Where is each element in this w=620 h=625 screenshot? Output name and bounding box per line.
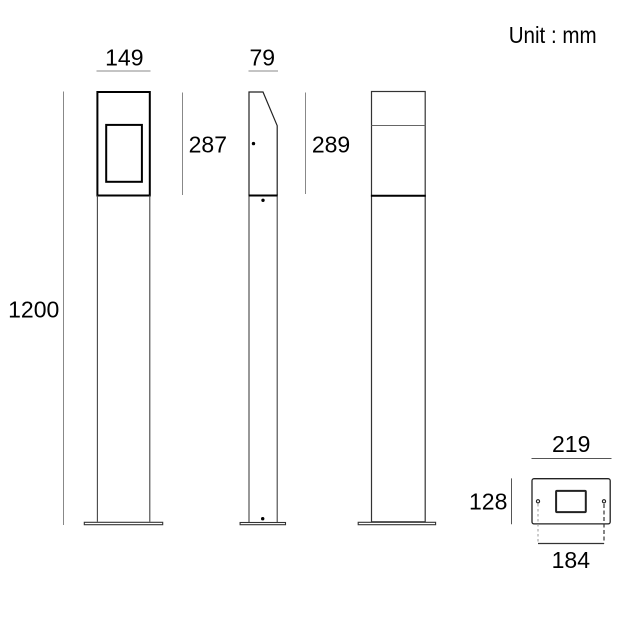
svg-text:289: 289: [312, 131, 350, 157]
svg-text:149: 149: [105, 45, 143, 71]
svg-text:287: 287: [189, 131, 227, 157]
svg-text:184: 184: [552, 547, 591, 573]
svg-text:128: 128: [469, 488, 507, 514]
svg-text:Unit : mm: Unit : mm: [509, 22, 597, 48]
svg-text:79: 79: [250, 45, 276, 71]
svg-text:1200: 1200: [8, 296, 59, 322]
svg-text:219: 219: [552, 431, 590, 457]
